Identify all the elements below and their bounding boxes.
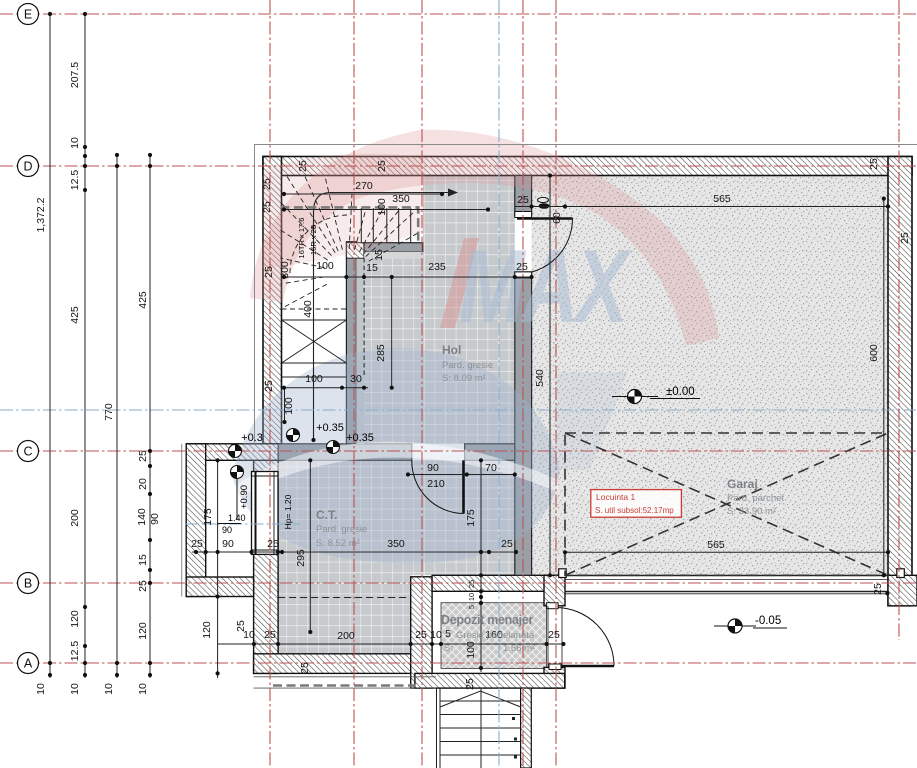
svg-text:25: 25 — [299, 662, 311, 674]
svg-text:25: 25 — [191, 538, 203, 550]
svg-text:285: 285 — [375, 344, 387, 362]
svg-text:25: 25 — [899, 232, 911, 244]
svg-text:+0.35: +0.35 — [316, 422, 344, 434]
svg-text:270: 270 — [355, 180, 373, 192]
svg-text:10: 10 — [467, 593, 476, 601]
svg-text:Pard. gresie: Pard. gresie — [442, 360, 493, 371]
svg-text:175: 175 — [202, 508, 214, 526]
svg-text:600: 600 — [868, 344, 880, 362]
svg-text:25: 25 — [415, 629, 427, 641]
svg-text:-0.05: -0.05 — [755, 615, 781, 627]
svg-text:350: 350 — [392, 193, 410, 205]
svg-text:Garaj: Garaj — [727, 477, 758, 491]
svg-text:+0.90: +0.90 — [239, 485, 250, 509]
svg-text:25: 25 — [548, 629, 560, 641]
svg-text:140: 140 — [136, 508, 148, 526]
svg-text:25: 25 — [516, 261, 528, 273]
svg-text:60: 60 — [551, 212, 563, 224]
svg-text:565: 565 — [713, 193, 731, 205]
svg-text:10: 10 — [137, 683, 149, 695]
svg-text:200: 200 — [337, 630, 355, 642]
svg-text:15: 15 — [137, 554, 149, 566]
svg-text:Depozit menajer: Depozit menajer — [441, 613, 533, 627]
svg-text:16TR x 17.6: 16TR x 17.6 — [297, 218, 306, 259]
svg-text:100: 100 — [283, 397, 295, 415]
svg-text:210: 210 — [427, 478, 445, 490]
svg-text:25: 25 — [267, 538, 279, 550]
svg-text:S: 33.90 m²: S: 33.90 m² — [727, 506, 776, 517]
svg-text:25: 25 — [261, 178, 273, 190]
svg-text:12.5: 12.5 — [69, 170, 81, 191]
svg-text:25: 25 — [467, 580, 476, 588]
svg-text:D: D — [23, 160, 32, 174]
svg-text:100: 100 — [376, 198, 388, 216]
svg-text:175: 175 — [465, 509, 477, 527]
svg-text:15: 15 — [366, 262, 378, 274]
svg-text:16R x 28: 16R x 28 — [309, 225, 318, 255]
svg-text:25: 25 — [376, 160, 388, 172]
svg-text:400: 400 — [302, 300, 314, 318]
svg-text:25: 25 — [264, 629, 276, 641]
svg-text:770: 770 — [103, 403, 115, 421]
svg-text:B: B — [24, 577, 32, 591]
svg-text:350: 350 — [387, 538, 405, 550]
svg-text:Hol: Hol — [442, 343, 461, 357]
svg-text:10: 10 — [69, 137, 81, 149]
svg-text:10: 10 — [103, 683, 115, 695]
svg-text:25: 25 — [137, 580, 149, 592]
svg-text:5: 5 — [467, 605, 476, 609]
svg-text:120: 120 — [201, 621, 213, 639]
svg-text:S:: S: — [444, 643, 453, 654]
svg-text:90: 90 — [149, 513, 161, 525]
svg-text:235: 235 — [428, 261, 446, 273]
svg-text:25: 25 — [235, 620, 247, 632]
svg-text:Locuinta 1: Locuinta 1 — [596, 492, 635, 502]
svg-text:425: 425 — [69, 306, 81, 324]
svg-text:90: 90 — [222, 525, 232, 535]
svg-text:70: 70 — [485, 462, 497, 474]
svg-text:25: 25 — [261, 201, 273, 213]
svg-text:Pard. parchet: Pard. parchet — [727, 493, 784, 504]
svg-text:100: 100 — [465, 641, 477, 659]
svg-text:25: 25 — [868, 158, 880, 170]
svg-text:207.5: 207.5 — [69, 62, 81, 88]
svg-text:20: 20 — [137, 478, 149, 490]
svg-text:25: 25 — [464, 678, 476, 690]
svg-text:Pard. gresie: Pard. gresie — [316, 524, 367, 535]
svg-text:565: 565 — [707, 539, 725, 551]
svg-text:100: 100 — [305, 373, 323, 385]
svg-text:10: 10 — [69, 683, 81, 695]
svg-text:100: 100 — [316, 260, 334, 272]
svg-text:C.T.: C.T. — [316, 508, 337, 522]
svg-text:540: 540 — [534, 369, 546, 387]
svg-text:25: 25 — [501, 538, 513, 550]
svg-text:25: 25 — [263, 266, 275, 278]
svg-text:25: 25 — [137, 450, 149, 462]
svg-text:90: 90 — [427, 462, 439, 474]
svg-text:425: 425 — [137, 291, 149, 309]
svg-text:1.40: 1.40 — [228, 513, 246, 523]
svg-text:Hp= 1.20: Hp= 1.20 — [283, 494, 293, 529]
svg-text:25: 25 — [263, 380, 275, 392]
svg-text:10: 10 — [430, 629, 442, 641]
svg-text:15: 15 — [373, 249, 385, 261]
svg-text:120: 120 — [69, 610, 81, 628]
svg-text:10: 10 — [35, 683, 47, 695]
svg-text:12.5: 12.5 — [69, 641, 81, 662]
svg-text:E: E — [24, 8, 32, 22]
svg-text:295: 295 — [295, 549, 307, 567]
svg-text:MAX: MAX — [459, 229, 632, 345]
svg-text:1,372.2: 1,372.2 — [35, 197, 47, 232]
svg-text:C: C — [23, 445, 32, 459]
svg-text:1.66 m²: 1.66 m² — [503, 643, 535, 654]
svg-text:+0.3: +0.3 — [241, 432, 263, 444]
svg-text:S: 8.52 m²: S: 8.52 m² — [316, 538, 360, 549]
svg-text:25: 25 — [872, 583, 884, 595]
svg-text:±0.00: ±0.00 — [666, 386, 695, 398]
svg-text:+0.35: +0.35 — [346, 432, 374, 444]
svg-text:120: 120 — [137, 622, 149, 640]
svg-text:25: 25 — [517, 194, 529, 206]
svg-text:200: 200 — [69, 509, 81, 527]
svg-text:Gresie portelanata: Gresie portelanata — [456, 630, 535, 641]
svg-text:25: 25 — [297, 160, 309, 172]
svg-text:A: A — [24, 657, 33, 671]
svg-text:5: 5 — [445, 628, 451, 640]
svg-text:S: 8.09 m²: S: 8.09 m² — [442, 373, 486, 384]
svg-text:300: 300 — [279, 261, 291, 279]
svg-text:90: 90 — [222, 538, 234, 550]
svg-text:30: 30 — [350, 373, 362, 385]
svg-text:S. util subsol:52.17mp: S. util subsol:52.17mp — [595, 506, 674, 515]
